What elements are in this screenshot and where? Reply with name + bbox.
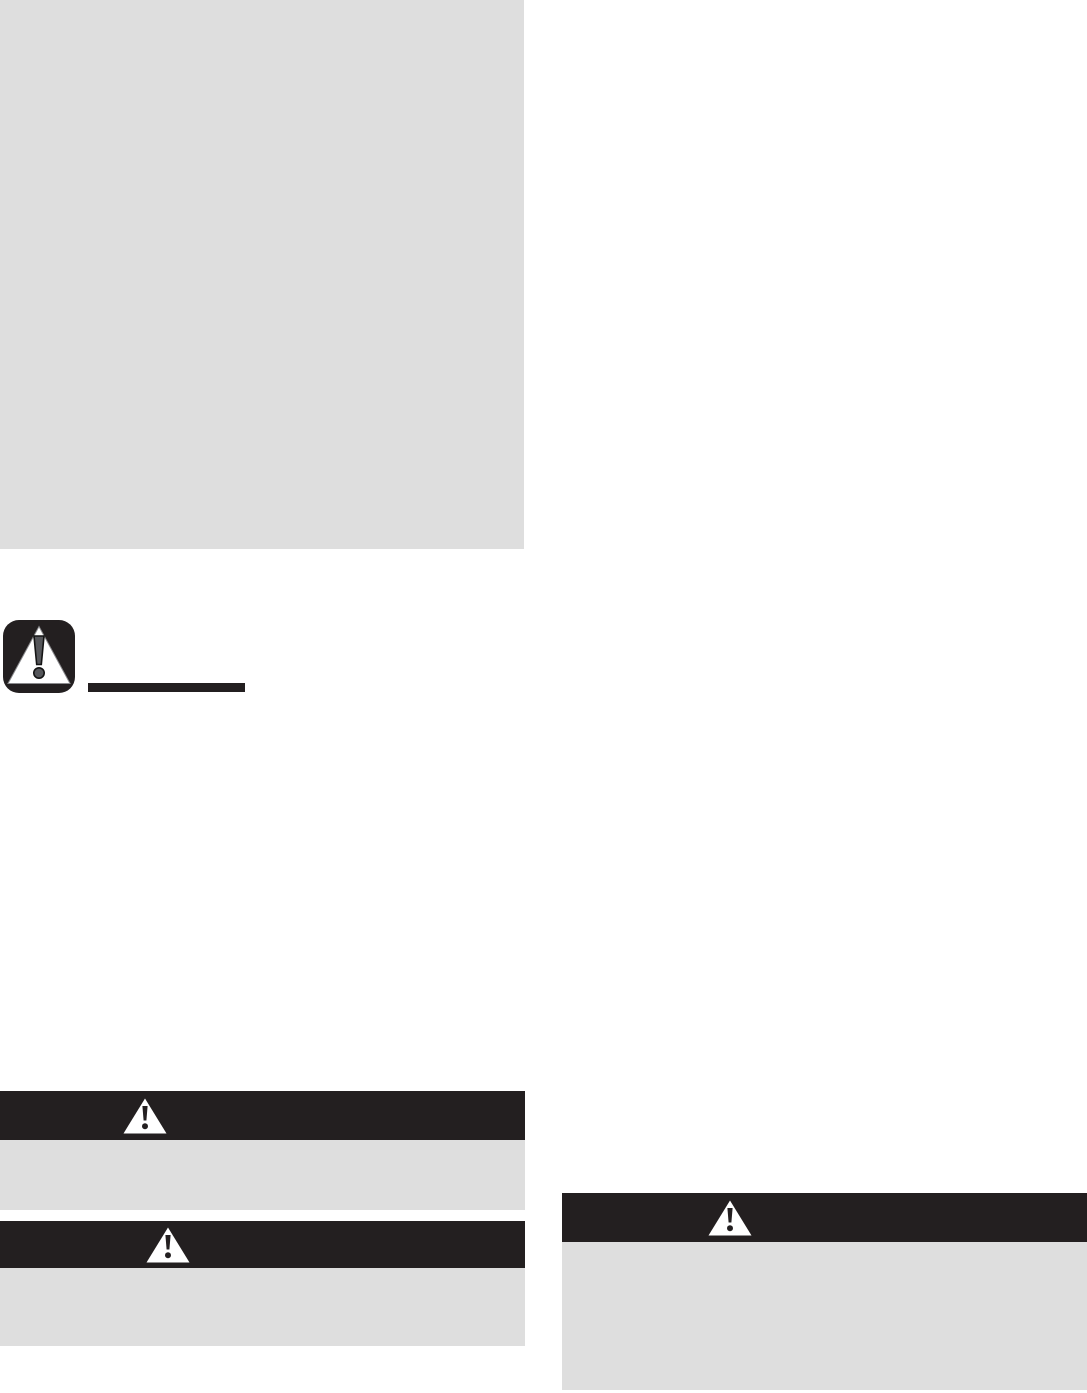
manual-page: [0, 0, 1087, 1393]
warning-banner-right-1: [562, 1193, 1087, 1390]
warning-banner-body: [562, 1242, 1087, 1390]
image-placeholder: [0, 0, 524, 549]
section-heading-bar: [88, 683, 245, 692]
warning-triangle-icon: [146, 1227, 190, 1263]
caution-icon: [3, 620, 75, 693]
caution-exclamation-triangle-icon: [3, 620, 75, 693]
warning-banner-left-2: [0, 1221, 525, 1346]
warning-banner-body: [0, 1268, 525, 1346]
warning-triangle-icon: [708, 1200, 752, 1236]
warning-triangle-icon: [123, 1098, 167, 1134]
warning-banner-header: [0, 1091, 525, 1140]
warning-banner-header: [562, 1193, 1087, 1242]
warning-banner-body: [0, 1140, 525, 1210]
warning-banner-left-1: [0, 1091, 525, 1210]
warning-banner-header: [0, 1221, 525, 1268]
